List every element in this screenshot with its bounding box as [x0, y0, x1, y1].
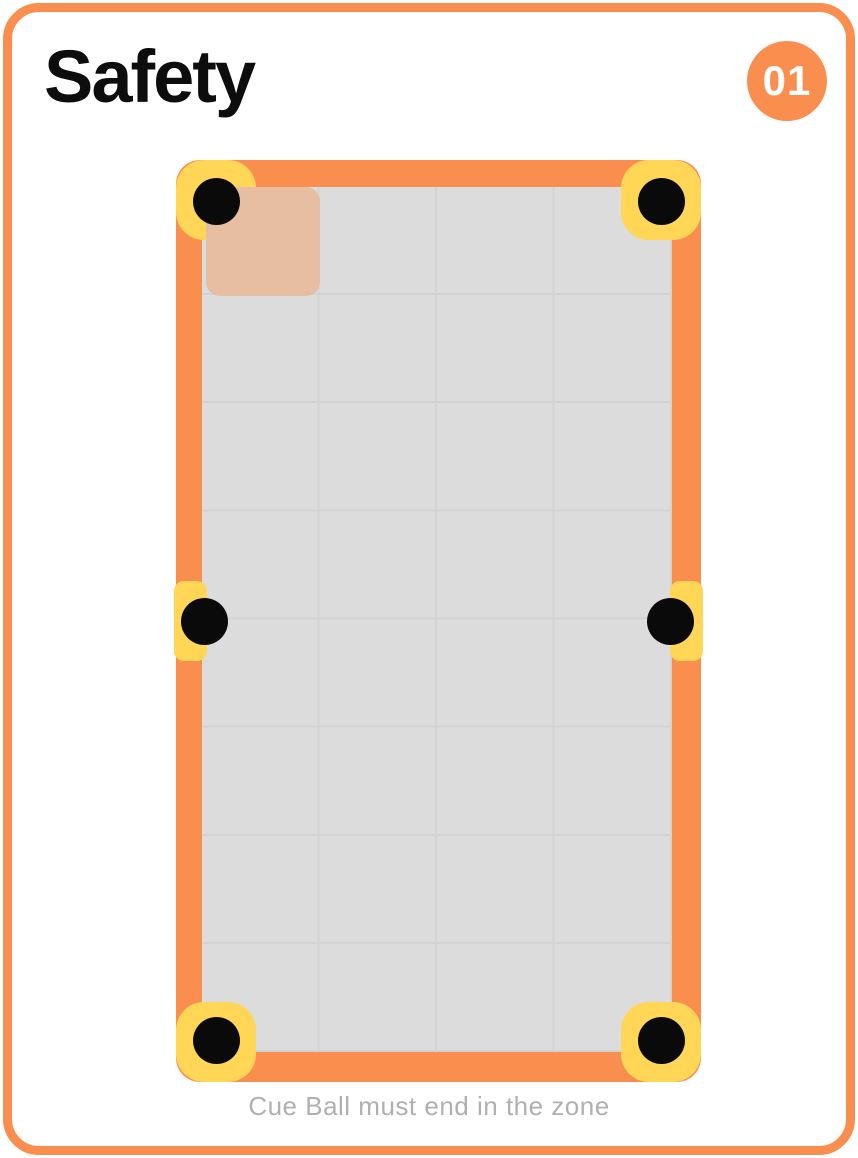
rule-caption: Cue Ball must end in the zone	[12, 1091, 846, 1122]
step-number-badge: 01	[747, 41, 827, 121]
pocket-hole-top-left	[193, 178, 240, 225]
pocket-hole-middle-right	[647, 598, 694, 645]
pocket-hole-top-right	[638, 178, 685, 225]
pocket-hole-bottom-left	[193, 1017, 240, 1064]
pool-table[interactable]	[176, 160, 701, 1082]
pocket-hole-bottom-right	[638, 1017, 685, 1064]
page-title: Safety	[44, 34, 254, 119]
pocket-hole-middle-left	[181, 598, 228, 645]
table-felt-grid[interactable]	[202, 187, 672, 1052]
page-background: Safety 01 Cue Ball must end in the zone	[0, 0, 858, 1158]
rule-card: Safety 01 Cue Ball must end in the zone	[3, 3, 855, 1155]
step-number-label: 01	[763, 57, 812, 105]
